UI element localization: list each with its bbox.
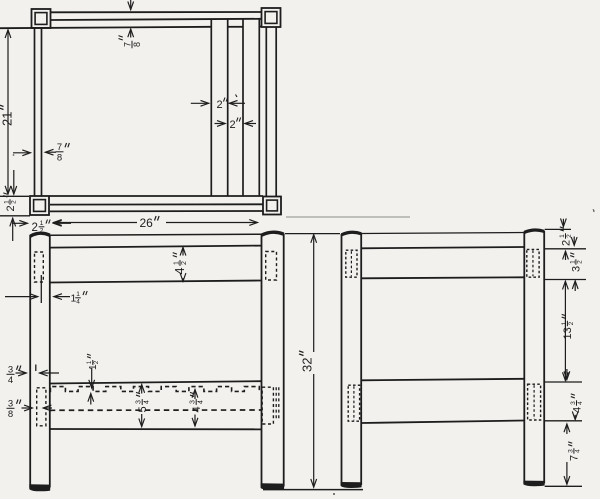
svg-text:3: 3 (190, 400, 197, 404)
svg-text:2: 2 (217, 99, 223, 111)
svg-text:4: 4 (197, 400, 204, 404)
svg-text:2: 2 (577, 260, 584, 264)
svg-text:2: 2 (566, 234, 573, 238)
svg-text:2: 2 (181, 261, 188, 265)
svg-text:8: 8 (8, 409, 13, 420)
svg-text:3: 3 (136, 400, 143, 404)
svg-text:8: 8 (132, 42, 142, 47)
svg-text:2: 2 (5, 205, 17, 211)
svg-text:5: 5 (137, 406, 149, 412)
svg-text:4: 4 (143, 400, 150, 404)
svg-text:4: 4 (191, 406, 203, 412)
svg-text:1: 1 (173, 261, 180, 265)
svg-text:1: 1 (561, 321, 568, 325)
svg-text:2: 2 (560, 240, 572, 246)
svg-text:7: 7 (122, 42, 132, 47)
svg-text:1: 1 (40, 220, 44, 227)
svg-text:4: 4 (76, 298, 80, 305)
svg-text:2: 2 (568, 321, 575, 325)
svg-text:4: 4 (8, 375, 13, 386)
svg-text:13: 13 (562, 327, 574, 339)
svg-text:4: 4 (577, 401, 584, 405)
svg-text:21: 21 (0, 112, 15, 126)
svg-text:26: 26 (140, 216, 154, 230)
svg-text:32: 32 (300, 358, 315, 372)
svg-text:8: 8 (57, 152, 62, 163)
svg-text:4: 4 (575, 449, 582, 453)
svg-text:3: 3 (571, 266, 583, 272)
svg-text:2: 2 (11, 200, 18, 204)
svg-text:3: 3 (570, 401, 577, 405)
svg-text:1: 1 (3, 200, 10, 204)
svg-text:1: 1 (76, 291, 80, 298)
svg-text:3: 3 (567, 449, 574, 453)
svg-text:1: 1 (559, 234, 566, 238)
svg-text:2: 2 (230, 119, 236, 131)
svg-text:1: 1 (569, 260, 576, 264)
svg-text:4: 4 (173, 268, 187, 275)
svg-text:7: 7 (569, 455, 581, 461)
svg-text:4: 4 (571, 407, 583, 413)
